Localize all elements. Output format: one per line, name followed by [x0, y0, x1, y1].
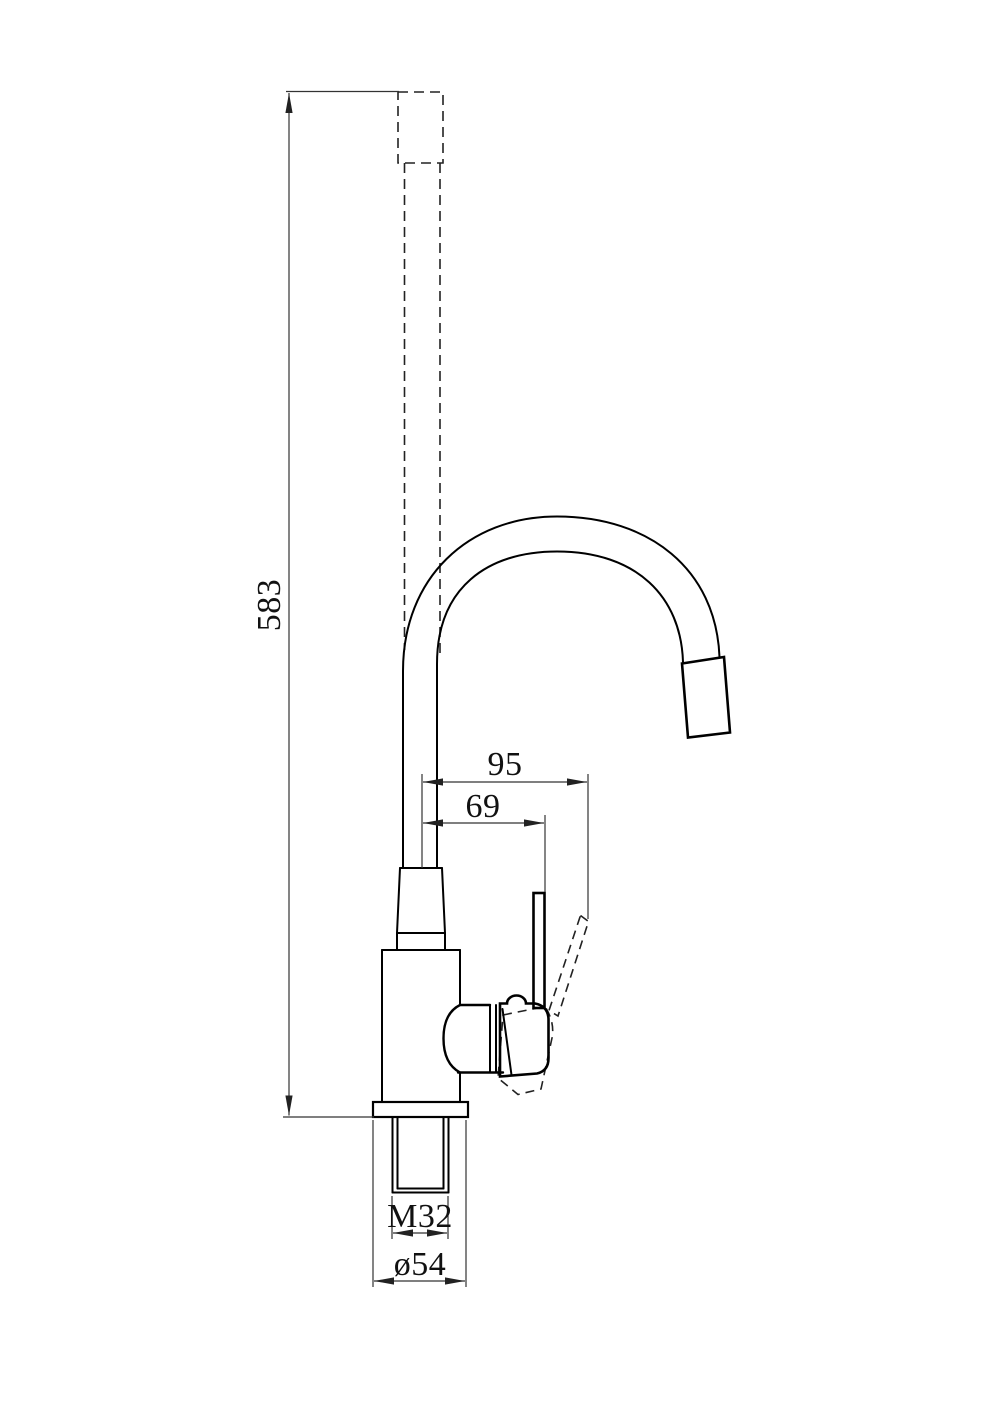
label-spout-offset-outer: 95 — [488, 746, 523, 783]
faucet-body — [382, 950, 460, 1102]
mounting-shank — [393, 1117, 449, 1193]
label-shank-thread: M32 — [387, 1198, 453, 1235]
faucet-outline — [373, 517, 730, 1193]
dimension-95 — [422, 774, 588, 919]
deck-flange — [373, 1102, 468, 1117]
dimension-69 — [423, 815, 545, 892]
label-base-diameter: ø54 — [394, 1246, 447, 1283]
label-overall-height: 583 — [251, 579, 288, 632]
spout-nozzle — [682, 657, 730, 738]
spout-outer-curve — [403, 517, 720, 869]
drawing-sheet: 583 95 69 M32 ø54 — [0, 0, 1000, 1415]
handle-base-facet-line — [503, 1009, 512, 1075]
handle-lever-dashed — [549, 916, 589, 1017]
raised-nozzle-dashed — [398, 92, 443, 163]
faucet-technical-drawing: 583 95 69 M32 ø54 — [0, 0, 1000, 1415]
handle-lever — [534, 893, 545, 1008]
connector-bulge — [444, 1005, 461, 1073]
dimension-lines — [283, 92, 588, 1288]
spout-raised-position-dashed — [398, 92, 443, 657]
valve-connector — [444, 1005, 504, 1073]
dimension-labels: 583 95 69 M32 ø54 — [251, 579, 523, 1283]
handle-base-dashed — [498, 1007, 553, 1095]
label-spout-offset-inner: 69 — [466, 788, 501, 825]
handle — [500, 893, 549, 1077]
